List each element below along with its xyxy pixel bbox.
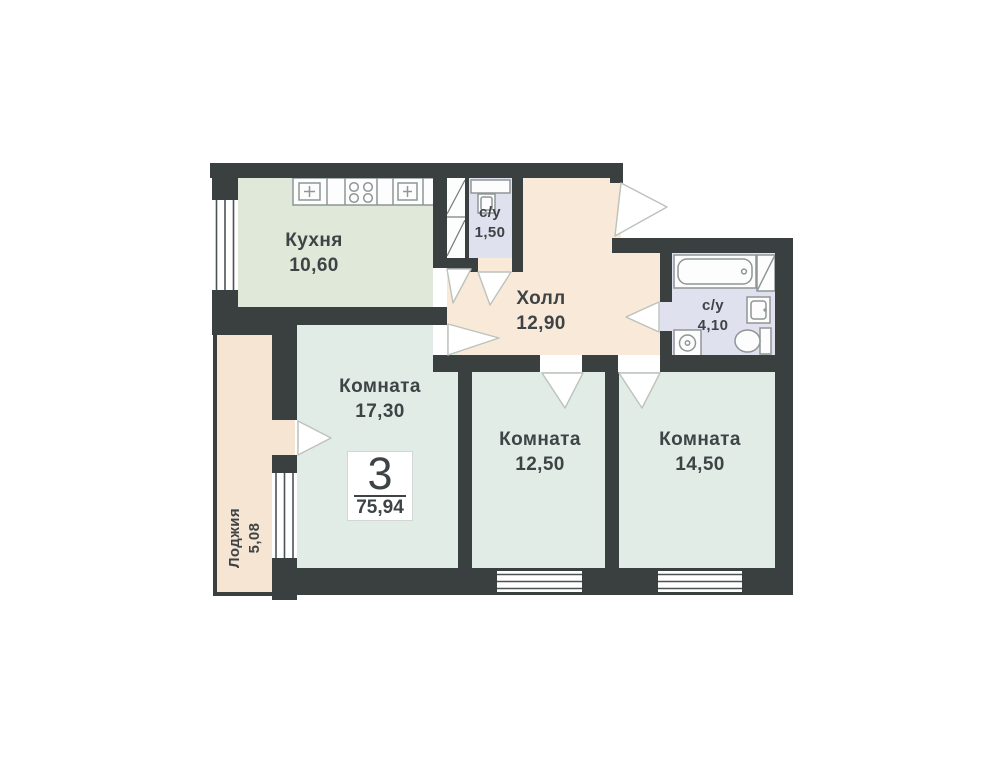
room-label-kitchen: Кухня 10,60 xyxy=(285,228,343,278)
toilet-tank xyxy=(760,328,771,354)
room-2-window xyxy=(497,571,582,592)
badge-room-count: 3 xyxy=(348,452,412,495)
wall-loggia-pier-mid xyxy=(272,455,297,473)
floor-plan-drawing xyxy=(0,0,1008,766)
toilet-icon xyxy=(735,330,760,352)
shaft-floor xyxy=(447,178,465,258)
room-label-hall: Холл 12,90 xyxy=(516,286,566,336)
wall-entrance-cap xyxy=(610,163,623,183)
room-area: 10,60 xyxy=(285,253,343,278)
room-name: Комната xyxy=(499,427,581,452)
wall-right-section-top xyxy=(612,238,793,253)
room-area: 1,50 xyxy=(475,223,506,243)
wall-room1-room2 xyxy=(458,355,472,568)
room-label-bathroom: с/у 4,10 xyxy=(698,296,729,336)
wall-hall-bottom xyxy=(433,355,775,372)
wall-bathroom-left-top xyxy=(660,253,672,302)
wc-shelf xyxy=(471,180,510,193)
room-name: Холл xyxy=(516,286,566,311)
room-label-room-3: Комната 14,50 xyxy=(659,427,741,477)
room-2-door-opening xyxy=(540,355,582,372)
room-label-room-1: Комната 17,30 xyxy=(339,374,421,424)
room-3-door-opening xyxy=(618,355,660,372)
room-name: Комната xyxy=(339,374,421,399)
room-name: Комната xyxy=(659,427,741,452)
room-1-door-opening xyxy=(433,325,447,355)
badge-total-area: 75,94 xyxy=(348,497,412,519)
entrance-door-swing xyxy=(615,183,667,236)
wall-wc-right xyxy=(512,178,523,272)
wall-loggia-left xyxy=(213,335,217,596)
room-area: 17,30 xyxy=(339,399,421,424)
room-name: Кухня xyxy=(285,228,343,253)
room-label-loggia: Лоджия 5,08 xyxy=(225,508,265,568)
room-name: Лоджия xyxy=(225,508,245,568)
wall-hall-kitchen xyxy=(433,178,447,268)
room-area: 4,10 xyxy=(698,316,729,336)
room-area: 14,50 xyxy=(659,452,741,477)
loggia-window xyxy=(272,473,297,558)
wall-room2-room3 xyxy=(605,355,619,568)
kitchen-window xyxy=(212,200,238,290)
wall-top xyxy=(210,163,623,178)
room-area: 12,90 xyxy=(516,311,566,336)
wall-right xyxy=(775,238,793,595)
wall-bathroom-left-bottom xyxy=(660,331,672,372)
wall-loggia-pier-top xyxy=(272,325,297,420)
room-3-window xyxy=(658,571,742,592)
room-area: 5,08 xyxy=(245,508,265,568)
room-label-wc-small: с/у 1,50 xyxy=(475,203,506,243)
floor-plan-page: Кухня 10,60 с/у 1,50 Холл 12,90 с/у 4,10… xyxy=(0,0,1008,766)
room-area: 12,50 xyxy=(499,452,581,477)
wall-shaft-divider xyxy=(465,178,469,258)
room-name: с/у xyxy=(698,296,729,316)
unit-badge: 3 75,94 xyxy=(347,451,413,521)
room-name: с/у xyxy=(475,203,506,223)
kitchen-door-opening xyxy=(433,268,447,307)
bathroom-sink-faucet xyxy=(763,308,766,311)
room-label-room-2: Комната 12,50 xyxy=(499,427,581,477)
bathtub-icon xyxy=(674,255,756,288)
